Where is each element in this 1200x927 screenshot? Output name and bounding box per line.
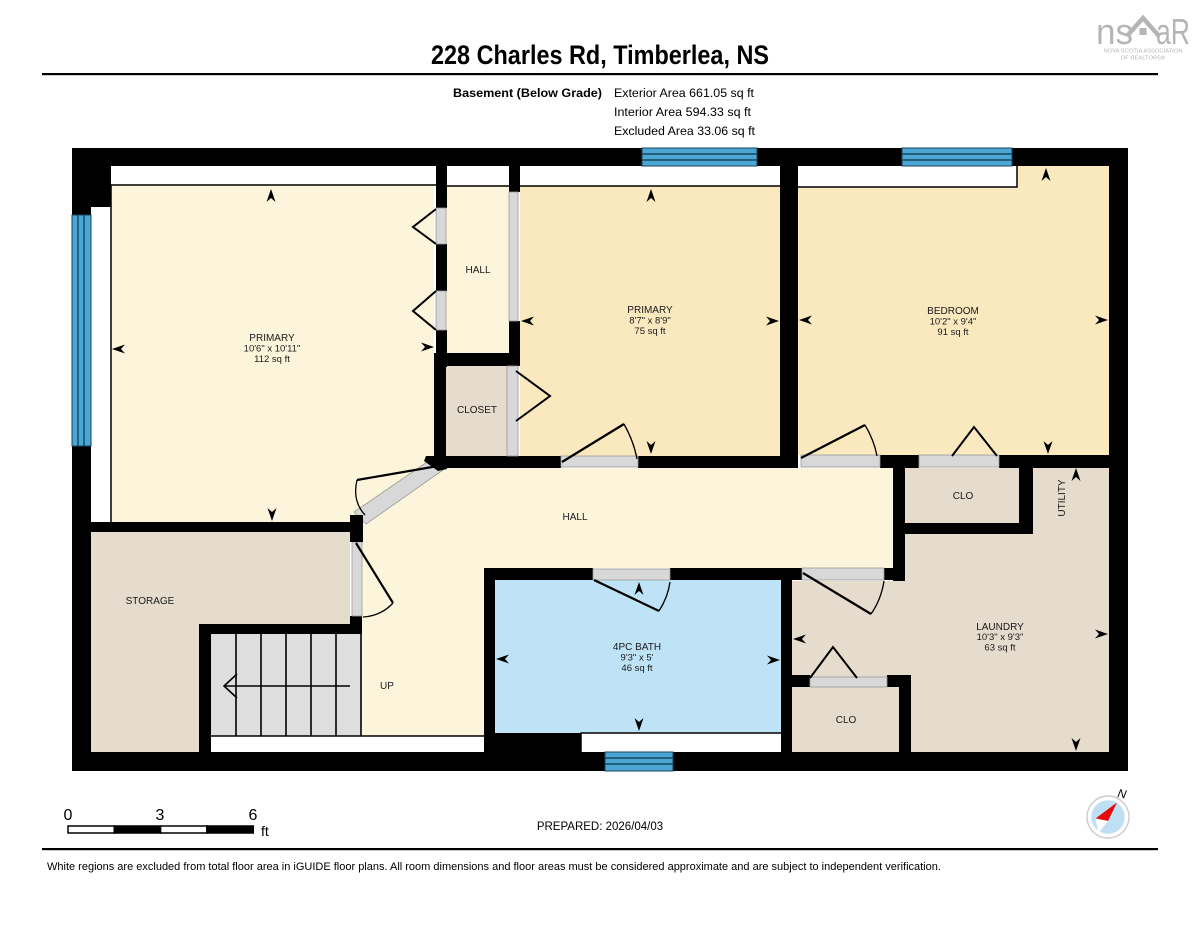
svg-text:Excluded Area 33.06 sq ft: Excluded Area 33.06 sq ft	[614, 124, 756, 138]
svg-text:HALL: HALL	[465, 265, 490, 276]
svg-text:Interior Area 594.33 sq ft: Interior Area 594.33 sq ft	[614, 105, 752, 119]
svg-text:10'6" x 10'11": 10'6" x 10'11"	[244, 344, 301, 355]
svg-text:3: 3	[156, 807, 165, 824]
svg-text:91 sq ft: 91 sq ft	[937, 327, 969, 338]
svg-text:aR: aR	[1156, 11, 1190, 52]
svg-text:HALL: HALL	[562, 512, 587, 523]
svg-text:White regions are excluded fro: White regions are excluded from total fl…	[47, 861, 941, 873]
svg-text:46 sq ft: 46 sq ft	[621, 663, 653, 674]
svg-text:CLO: CLO	[836, 715, 857, 726]
svg-text:10'2" x 9'4": 10'2" x 9'4"	[930, 317, 977, 328]
svg-text:8'7" x 8'9": 8'7" x 8'9"	[629, 316, 671, 327]
svg-text:228 Charles Rd, Timberlea, NS: 228 Charles Rd, Timberlea, NS	[431, 40, 769, 70]
svg-text:STORAGE: STORAGE	[126, 596, 175, 607]
svg-text:0: 0	[64, 807, 73, 824]
svg-text:CLO: CLO	[953, 491, 974, 502]
svg-text:Exterior Area 661.05 sq ft: Exterior Area 661.05 sq ft	[614, 86, 755, 100]
svg-text:ft: ft	[261, 823, 269, 839]
svg-text:75 sq ft: 75 sq ft	[634, 326, 666, 337]
svg-text:63 sq ft: 63 sq ft	[984, 643, 1016, 654]
svg-text:10'3" x 9'3": 10'3" x 9'3"	[977, 632, 1024, 643]
svg-text:CLOSET: CLOSET	[457, 405, 497, 416]
svg-text:UP: UP	[380, 681, 394, 692]
svg-text:6: 6	[249, 807, 258, 824]
svg-text:BEDROOM: BEDROOM	[927, 306, 979, 317]
svg-text:UTILITY: UTILITY	[1057, 479, 1068, 517]
svg-text:PRIMARY: PRIMARY	[627, 305, 673, 316]
svg-text:ns: ns	[1096, 11, 1133, 52]
svg-text:4PC BATH: 4PC BATH	[613, 642, 661, 653]
svg-text:112 sq ft: 112 sq ft	[254, 354, 290, 365]
svg-text:NOVA SCOTIA ASSOCIATION: NOVA SCOTIA ASSOCIATION	[1103, 49, 1182, 55]
svg-text:PRIMARY: PRIMARY	[249, 333, 295, 344]
svg-text:OF REALTORS®: OF REALTORS®	[1121, 55, 1166, 62]
svg-text:Basement (Below Grade): Basement (Below Grade)	[453, 86, 602, 100]
svg-text:9'3" x 5': 9'3" x 5'	[621, 653, 654, 664]
svg-text:PREPARED: 2026/04/03: PREPARED: 2026/04/03	[537, 821, 663, 833]
